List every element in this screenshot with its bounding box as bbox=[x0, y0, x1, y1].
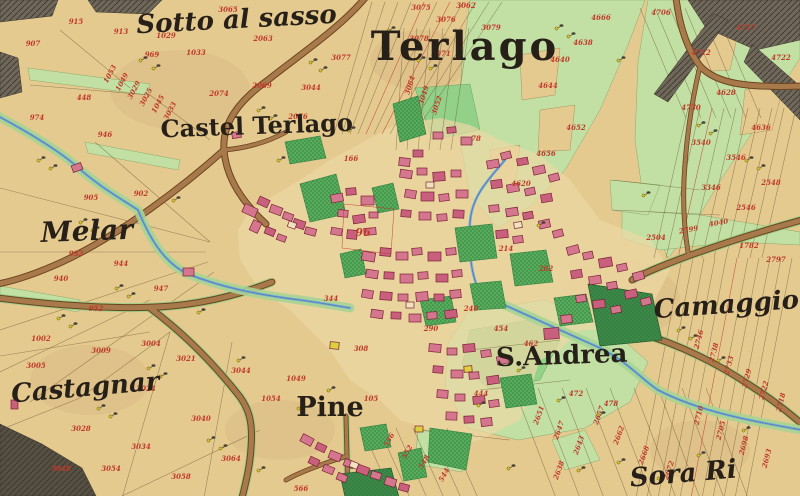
building bbox=[481, 417, 493, 426]
parcel-number: 3064 bbox=[221, 454, 241, 463]
building bbox=[489, 399, 500, 407]
parcel-number: 1782 bbox=[739, 241, 759, 250]
parcel-number: 2548 bbox=[760, 178, 781, 187]
parcel-number: 3075 bbox=[411, 3, 431, 12]
building bbox=[419, 212, 431, 220]
parcel-number: 3044 bbox=[231, 366, 251, 375]
building bbox=[576, 294, 587, 302]
building bbox=[589, 275, 602, 285]
parcel-number: 905 bbox=[84, 193, 99, 202]
place-label-terlago: Terlago bbox=[371, 23, 559, 70]
building bbox=[544, 327, 560, 339]
building bbox=[489, 205, 500, 213]
parcel-number: 969 bbox=[145, 50, 160, 59]
building bbox=[513, 235, 524, 243]
parcel-number: 4656 bbox=[536, 149, 556, 158]
building bbox=[417, 168, 427, 175]
building bbox=[598, 257, 612, 268]
building bbox=[514, 221, 523, 228]
parcel-number: 4722 bbox=[771, 53, 791, 62]
parcel-number: 1002 bbox=[31, 334, 51, 343]
building bbox=[436, 274, 448, 282]
building bbox=[412, 248, 423, 256]
parcel-number: 902 bbox=[134, 189, 149, 198]
building bbox=[330, 227, 342, 236]
building bbox=[522, 211, 533, 220]
parcel-number: 344 bbox=[324, 294, 339, 303]
parcel-number: 4638 bbox=[573, 38, 593, 47]
parcel-number: 915 bbox=[69, 17, 84, 26]
building bbox=[433, 132, 443, 139]
building bbox=[433, 172, 446, 182]
building bbox=[561, 315, 573, 324]
parcel-number: 4644 bbox=[538, 81, 558, 90]
building bbox=[516, 157, 528, 166]
parcel-number: 105 bbox=[364, 394, 379, 403]
parcel-number: 3077 bbox=[331, 53, 351, 62]
building bbox=[437, 214, 448, 222]
building bbox=[540, 193, 552, 203]
building bbox=[380, 248, 392, 257]
wooden-building bbox=[330, 342, 340, 350]
parcel-number: 3048 bbox=[51, 464, 71, 473]
parcel-number: 448 bbox=[77, 93, 92, 102]
garden-stipple bbox=[455, 224, 497, 262]
building bbox=[391, 312, 401, 319]
building bbox=[401, 210, 412, 218]
building bbox=[447, 127, 456, 134]
parcel-number: 907 bbox=[26, 39, 41, 48]
parcel-number: 4712 bbox=[691, 48, 711, 57]
parcel-number: 1054 bbox=[261, 394, 281, 403]
parcel-number: 262 bbox=[538, 264, 554, 273]
parcel-number: 4628 bbox=[716, 88, 736, 97]
parcel-number: 3004 bbox=[141, 339, 161, 348]
historical-cadastral-map-viewport: 96 9079159464489749139691053104930293025… bbox=[0, 0, 800, 496]
parcel-number: 1033 bbox=[186, 48, 206, 57]
parcel-number: 214 bbox=[498, 244, 514, 253]
building bbox=[366, 269, 379, 279]
building bbox=[447, 348, 457, 355]
parcel-number: 444 bbox=[474, 389, 489, 398]
building bbox=[433, 366, 444, 374]
place-label-s-andrea: S.Andrea bbox=[496, 339, 628, 374]
building bbox=[610, 305, 621, 314]
parcel-number: 952 bbox=[89, 304, 104, 313]
parcel-number: 2063 bbox=[252, 34, 273, 43]
building bbox=[456, 190, 468, 198]
parcel-number: 166 bbox=[344, 154, 359, 163]
special-parcel-number: 96 bbox=[355, 226, 371, 239]
parcel-number: 940 bbox=[54, 274, 69, 283]
parcel-number: 3546 bbox=[726, 153, 746, 162]
building bbox=[421, 192, 434, 201]
parcel-number: 3021 bbox=[176, 354, 195, 363]
parcel-number: 4717 bbox=[736, 23, 756, 32]
building bbox=[570, 269, 582, 279]
building bbox=[434, 294, 444, 301]
parcel-number: 308 bbox=[354, 344, 369, 353]
parcel-number: 3540 bbox=[691, 138, 711, 147]
building bbox=[330, 193, 343, 203]
parcel-number: 472 bbox=[569, 389, 584, 398]
cadastral-map-terlago: 96 9079159464489749139691053104930293025… bbox=[0, 0, 800, 496]
parcel-number: 3009 bbox=[91, 346, 111, 355]
parcel-number: 4666 bbox=[591, 13, 611, 22]
parcel-number: 932 bbox=[69, 249, 84, 258]
parcel-number: 3346 bbox=[701, 183, 721, 192]
parcel-number: 3028 bbox=[71, 424, 91, 433]
parcel-number: 946 bbox=[98, 130, 113, 139]
parcel-number: 4636 bbox=[751, 123, 771, 132]
building bbox=[338, 210, 349, 218]
building bbox=[446, 248, 457, 256]
parcel-number: 947 bbox=[154, 284, 169, 293]
building bbox=[486, 159, 499, 169]
building bbox=[416, 291, 429, 301]
building bbox=[371, 309, 384, 319]
parcel-number: 1049 bbox=[286, 374, 306, 383]
building bbox=[429, 343, 442, 352]
parcel-number: 3058 bbox=[171, 472, 191, 481]
parcel-number: 974 bbox=[30, 113, 45, 122]
building bbox=[464, 416, 474, 424]
building bbox=[418, 272, 428, 280]
wooden-building bbox=[415, 426, 423, 432]
parcel-number: 478 bbox=[604, 399, 619, 408]
parcel-number: 2074 bbox=[208, 89, 229, 98]
building bbox=[455, 394, 465, 401]
building bbox=[380, 292, 393, 301]
building bbox=[400, 169, 413, 179]
building bbox=[427, 312, 437, 320]
building bbox=[400, 274, 413, 283]
building bbox=[361, 251, 375, 262]
parcel-number: 240 bbox=[463, 304, 479, 313]
parcel-number: 4620 bbox=[511, 179, 531, 188]
building bbox=[439, 193, 450, 201]
building bbox=[183, 268, 194, 276]
building bbox=[426, 182, 434, 188]
building bbox=[593, 299, 606, 308]
building bbox=[406, 302, 414, 308]
parcel-number: 3034 bbox=[131, 442, 151, 451]
building bbox=[396, 252, 408, 260]
parcel-number: 2069 bbox=[251, 81, 272, 90]
building bbox=[445, 309, 458, 319]
parcel-number: 566 bbox=[294, 484, 309, 493]
parcel-number: 4730 bbox=[681, 103, 701, 112]
parcel-number: 944 bbox=[114, 259, 129, 268]
building bbox=[404, 189, 416, 199]
parcel-number: 3040 bbox=[191, 414, 211, 423]
building bbox=[487, 375, 500, 385]
parcel-number: 2546 bbox=[735, 203, 756, 212]
building bbox=[452, 269, 463, 277]
building bbox=[450, 290, 462, 299]
place-label-pine: Pine bbox=[296, 392, 363, 423]
building bbox=[463, 343, 476, 352]
parcel-number: 3054 bbox=[101, 464, 121, 473]
parcel-number: 3044 bbox=[301, 83, 321, 92]
building bbox=[606, 281, 617, 290]
building bbox=[409, 314, 421, 322]
parcel-number: 2504 bbox=[645, 233, 666, 242]
parcel-number: 4706 bbox=[651, 8, 671, 17]
building bbox=[451, 370, 463, 378]
building bbox=[451, 170, 461, 177]
building bbox=[490, 179, 502, 188]
building bbox=[413, 150, 423, 157]
parcel-number: 4652 bbox=[566, 123, 586, 132]
building bbox=[453, 210, 464, 219]
building bbox=[437, 390, 449, 399]
building bbox=[369, 212, 378, 218]
building bbox=[481, 349, 492, 357]
place-label-melar: Melar bbox=[39, 213, 136, 249]
building bbox=[506, 207, 519, 217]
garden-stipple bbox=[500, 374, 537, 408]
parcel-number: 913 bbox=[114, 27, 129, 36]
parcel-number: 3005 bbox=[26, 361, 46, 370]
parcel-number: 3062 bbox=[456, 1, 476, 10]
parcel-number: 2797 bbox=[765, 255, 786, 264]
building bbox=[428, 252, 441, 261]
garden-stipple bbox=[554, 294, 593, 326]
building bbox=[496, 229, 509, 238]
building bbox=[346, 188, 357, 196]
building bbox=[446, 412, 457, 420]
building bbox=[361, 289, 373, 299]
parcel-number: 78 bbox=[471, 134, 481, 143]
building bbox=[398, 294, 408, 301]
building bbox=[361, 196, 374, 205]
wooden-building bbox=[464, 366, 472, 373]
building bbox=[469, 372, 480, 380]
building bbox=[399, 157, 411, 166]
parcel-number: 290 bbox=[423, 324, 439, 333]
parcel-number: 454 bbox=[494, 324, 509, 333]
building bbox=[353, 214, 366, 224]
building bbox=[384, 272, 394, 280]
